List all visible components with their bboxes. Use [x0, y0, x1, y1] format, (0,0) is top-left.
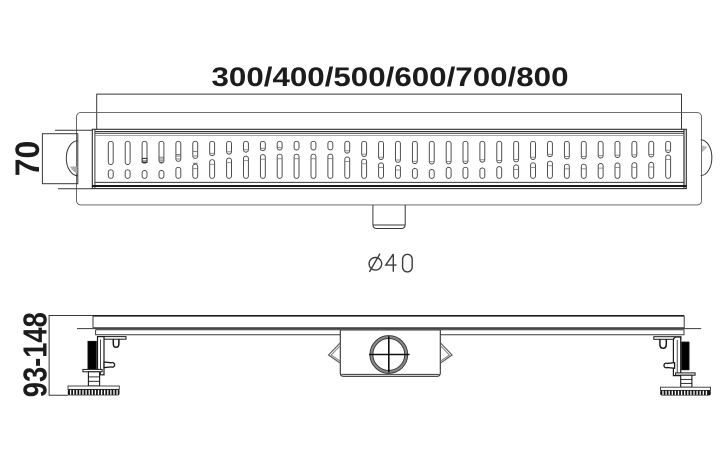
- svg-text:93-148: 93-148: [16, 312, 53, 397]
- svg-text:300/400/500/600/700/800: 300/400/500/600/700/800: [212, 62, 569, 92]
- svg-text:70: 70: [9, 141, 47, 177]
